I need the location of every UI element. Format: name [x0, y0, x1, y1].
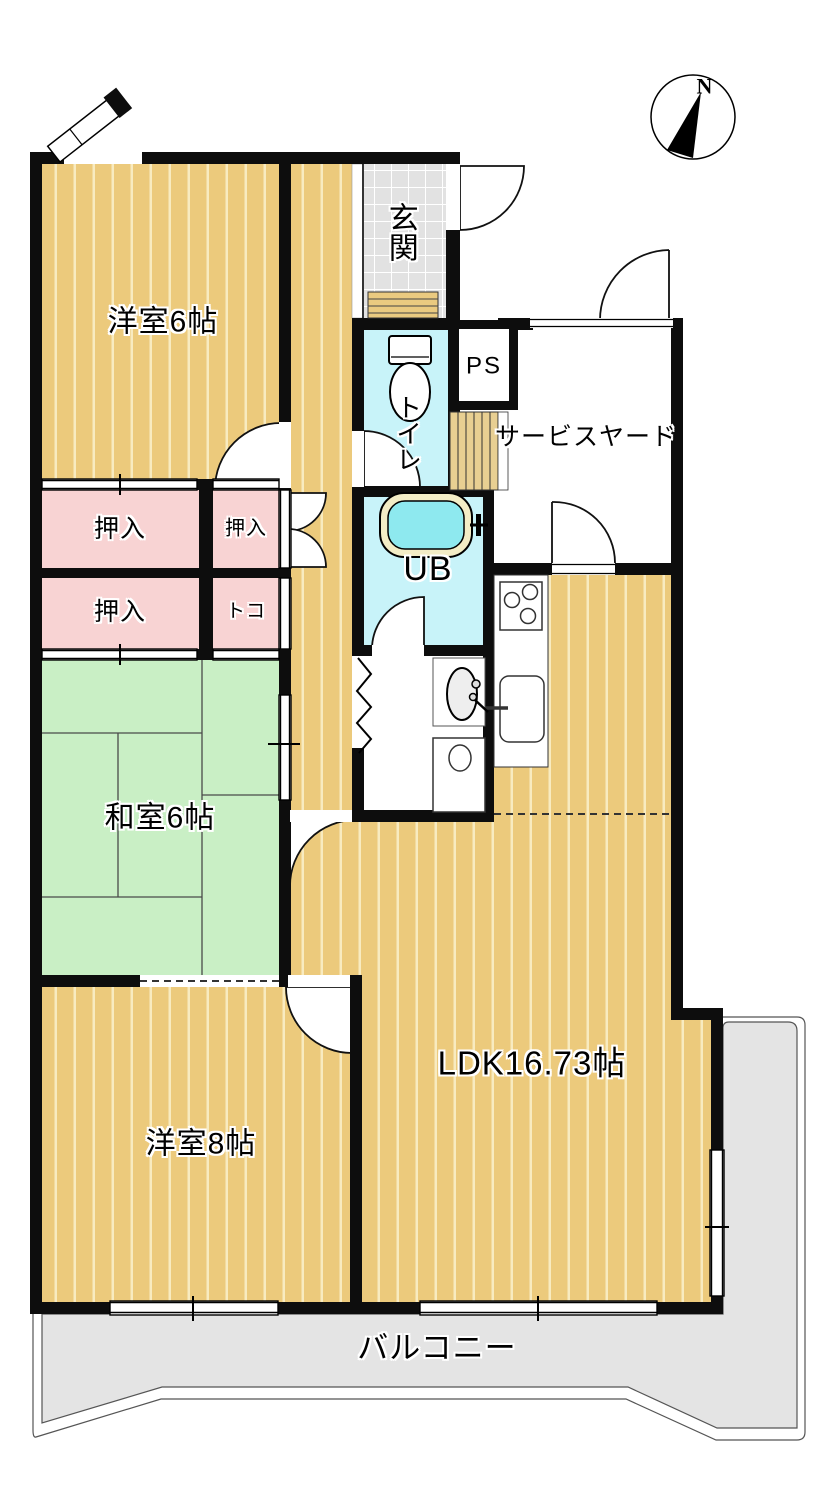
- service-yard-fence: [530, 318, 673, 328]
- corridor-ldk-opening: [290, 810, 352, 822]
- entrance-step-edge: [352, 164, 363, 318]
- kitchen-service-door-opening: [552, 563, 615, 575]
- label-ldk: LDK16.73帖: [438, 1047, 627, 1082]
- stove-icon: [500, 582, 542, 630]
- front-door-opening: [446, 164, 460, 230]
- door-arc-service-yard-gate: [600, 250, 669, 320]
- label-unit-bath: UB: [403, 552, 452, 588]
- floorplan-drawing: [0, 0, 839, 1500]
- label-pipe-space: PS: [466, 353, 502, 378]
- door-arc-kitchen-service: [552, 502, 615, 563]
- label-closet-upper-left: 押入: [94, 516, 146, 542]
- label-western-room-8: 洋室8帖: [146, 1128, 257, 1160]
- compass-icon: [651, 75, 735, 159]
- unit-bath-door-opening: [372, 645, 424, 656]
- label-japanese-room-6: 和室6帖: [105, 802, 216, 834]
- vanity-sink-icon: [433, 658, 488, 726]
- label-balcony: バルコニー: [357, 1333, 516, 1366]
- label-service-yard: サービスヤード: [495, 424, 677, 450]
- label-tokonoma: トコ: [226, 602, 266, 622]
- label-compass-north: N: [697, 74, 714, 97]
- entrance-step: [368, 292, 438, 318]
- western-room-8-door-opening: [288, 975, 350, 987]
- toilet-door-opening: [352, 431, 364, 487]
- kitchen-counter: [484, 575, 548, 767]
- label-western-room-6: 洋室6帖: [108, 306, 219, 338]
- door-arc-front-entrance: [460, 166, 524, 230]
- western-room-6-door-opening: [279, 422, 291, 488]
- washing-machine-icon: [433, 738, 485, 812]
- floorplan-canvas: 洋室6帖 玄関 PS サービスヤード トイレ UB 押入 押入 押入 トコ 和室…: [0, 0, 839, 1500]
- bay-window: [45, 88, 132, 164]
- label-closet-lower-left: 押入: [94, 599, 146, 625]
- label-toilet: トイレ: [393, 394, 420, 472]
- label-entrance: 玄関: [384, 202, 416, 262]
- label-closet-upper-right: 押入: [225, 519, 267, 540]
